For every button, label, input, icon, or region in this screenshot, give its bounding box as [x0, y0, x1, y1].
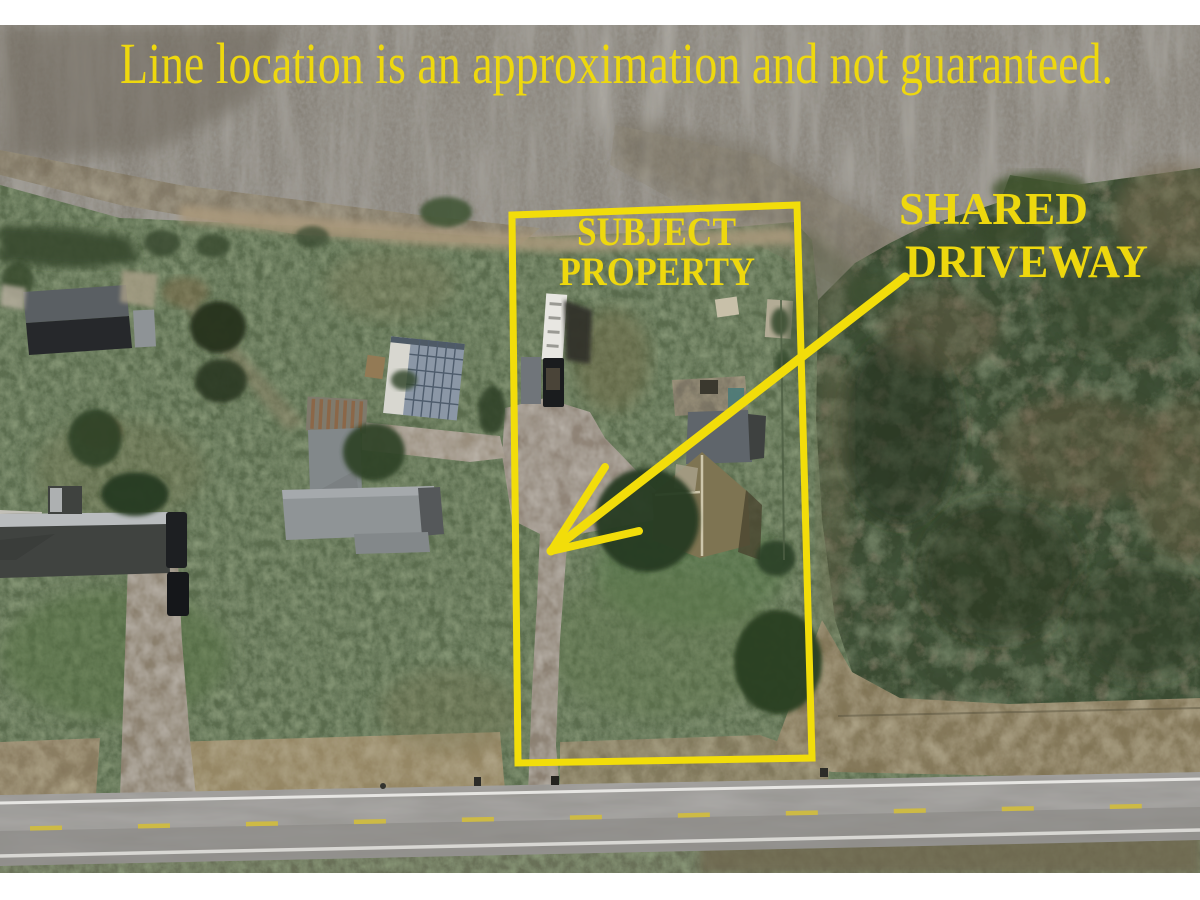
svg-text:DRIVEWAY: DRIVEWAY: [905, 236, 1148, 288]
svg-text:Line location is an approximat: Line location is an approximation and no…: [120, 31, 1113, 96]
svg-text:SHARED: SHARED: [899, 184, 1088, 234]
svg-text:SUBJECT: SUBJECT: [577, 209, 736, 254]
svg-text:PROPERTY: PROPERTY: [559, 249, 755, 294]
